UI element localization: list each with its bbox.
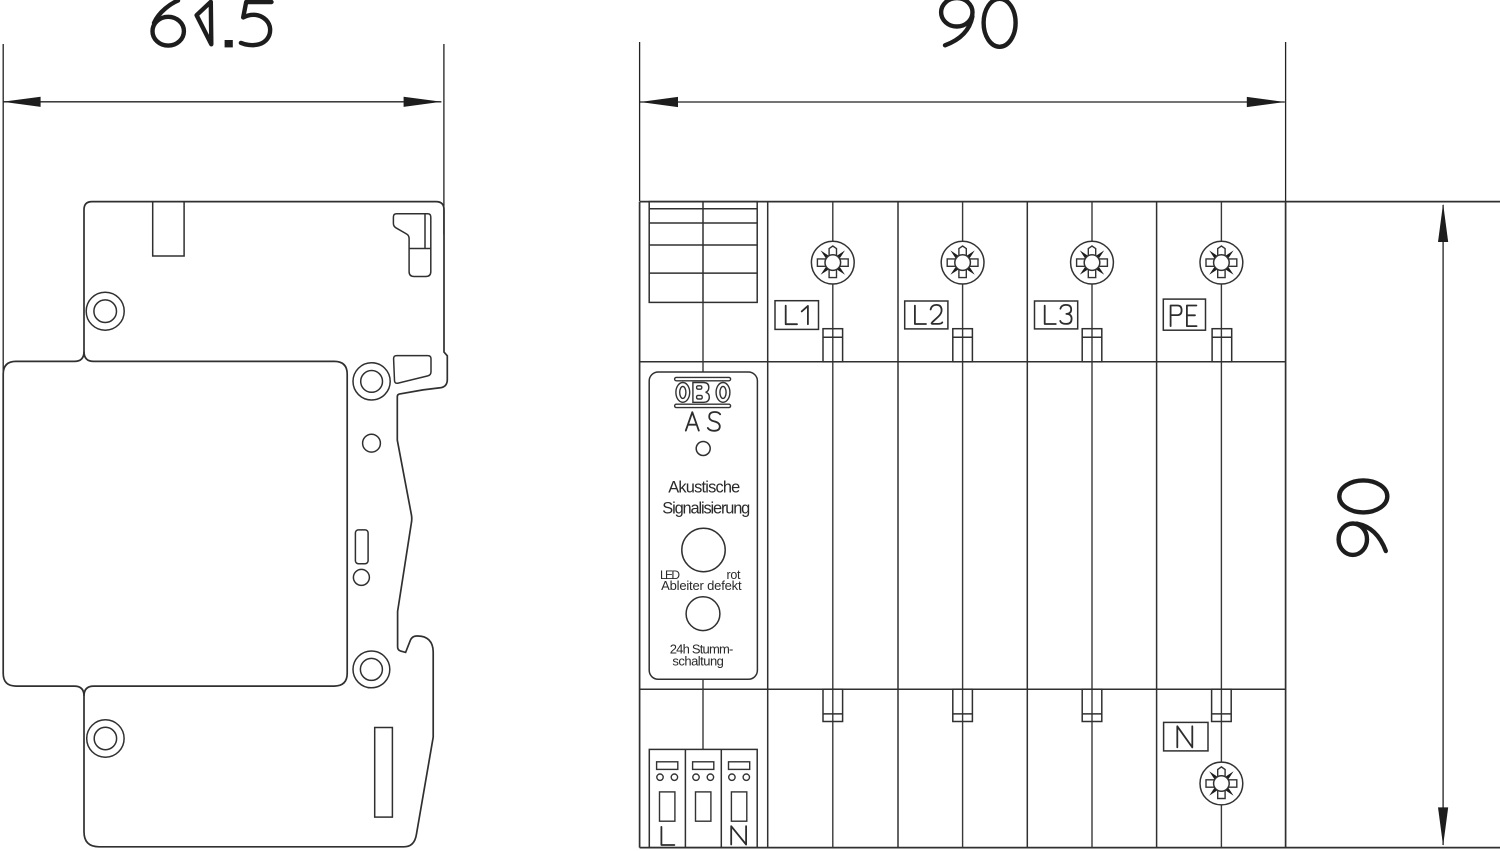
svg-text:Signalisierung: Signalisierung (662, 500, 750, 518)
svg-text:Akustische: Akustische (668, 479, 740, 497)
svg-text:schaltung: schaltung (672, 654, 724, 669)
svg-text:Ableiter defekt: Ableiter defekt (661, 578, 742, 593)
